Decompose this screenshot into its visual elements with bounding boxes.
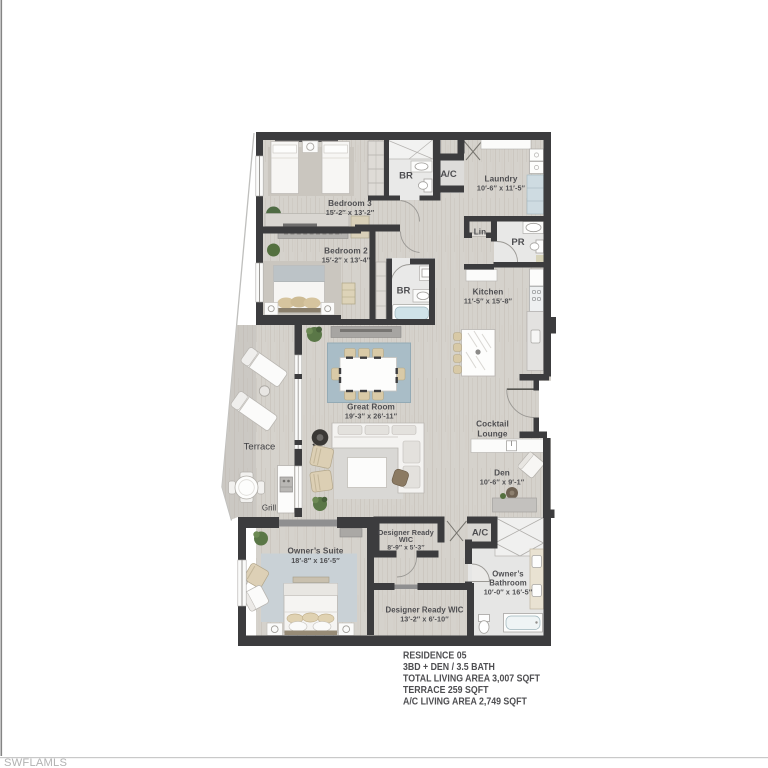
svg-text:Designer Ready WIC: Designer Ready WIC (385, 606, 463, 615)
svg-text:SWFLAMLS: SWFLAMLS (4, 757, 67, 768)
svg-text:8′-9″ x 5′-3″: 8′-9″ x 5′-3″ (387, 544, 425, 551)
svg-text:10′-6″ x 11′-5″: 10′-6″ x 11′-5″ (477, 184, 526, 193)
svg-text:A/C: A/C (472, 528, 489, 539)
svg-text:Bathroom: Bathroom (489, 579, 527, 588)
svg-text:Bedroom 2: Bedroom 2 (324, 247, 368, 256)
svg-text:BR: BR (397, 286, 411, 297)
svg-text:Kitchen: Kitchen (473, 288, 504, 297)
svg-text:A/C: A/C (440, 169, 457, 180)
svg-text:13′-2″ x 6′-10″: 13′-2″ x 6′-10″ (400, 615, 449, 624)
svg-text:18′-8″ x 16′-5″: 18′-8″ x 16′-5″ (291, 556, 340, 565)
svg-text:Great Room: Great Room (347, 403, 395, 412)
svg-text:3BD + DEN / 3.5 BATH: 3BD + DEN / 3.5 BATH (403, 660, 495, 672)
svg-text:TOTAL LIVING AREA 3,007 SQFT: TOTAL LIVING AREA 3,007 SQFT (403, 672, 540, 684)
svg-text:15′-2″ x 13′-2″: 15′-2″ x 13′-2″ (326, 208, 375, 217)
svg-text:Owner’s: Owner’s (492, 570, 524, 579)
svg-text:10′-6″ x 9′-1″: 10′-6″ x 9′-1″ (480, 478, 525, 487)
svg-text:Cocktail: Cocktail (476, 420, 509, 429)
svg-text:RESIDENCE 05: RESIDENCE 05 (403, 649, 467, 661)
svg-text:10′-0″ x 16′-5″: 10′-0″ x 16′-5″ (484, 588, 533, 597)
svg-text:19′-3″ x 26′-11″: 19′-3″ x 26′-11″ (345, 412, 398, 421)
svg-text:15′-2″ x 13′-4″: 15′-2″ x 13′-4″ (322, 256, 371, 265)
svg-text:Grill: Grill (262, 504, 276, 513)
svg-text:Owner’s Suite: Owner’s Suite (288, 547, 344, 556)
svg-text:WIC: WIC (399, 535, 413, 544)
svg-text:A/C LIVING AREA 2,749 SQFT: A/C LIVING AREA 2,749 SQFT (403, 695, 527, 707)
svg-text:PR: PR (511, 237, 524, 248)
svg-text:Terrace: Terrace (244, 442, 276, 453)
svg-text:Bedroom 3: Bedroom 3 (328, 199, 372, 208)
svg-text:Lin: Lin (474, 228, 487, 237)
svg-text:Den: Den (494, 469, 510, 478)
svg-text:11′-5″ x 15′-8″: 11′-5″ x 15′-8″ (464, 297, 513, 306)
svg-text:BR: BR (399, 171, 413, 182)
svg-text:Laundry: Laundry (485, 175, 518, 184)
svg-text:Lounge: Lounge (477, 430, 508, 439)
svg-text:TERRACE 259 SQFT: TERRACE 259 SQFT (403, 683, 489, 695)
